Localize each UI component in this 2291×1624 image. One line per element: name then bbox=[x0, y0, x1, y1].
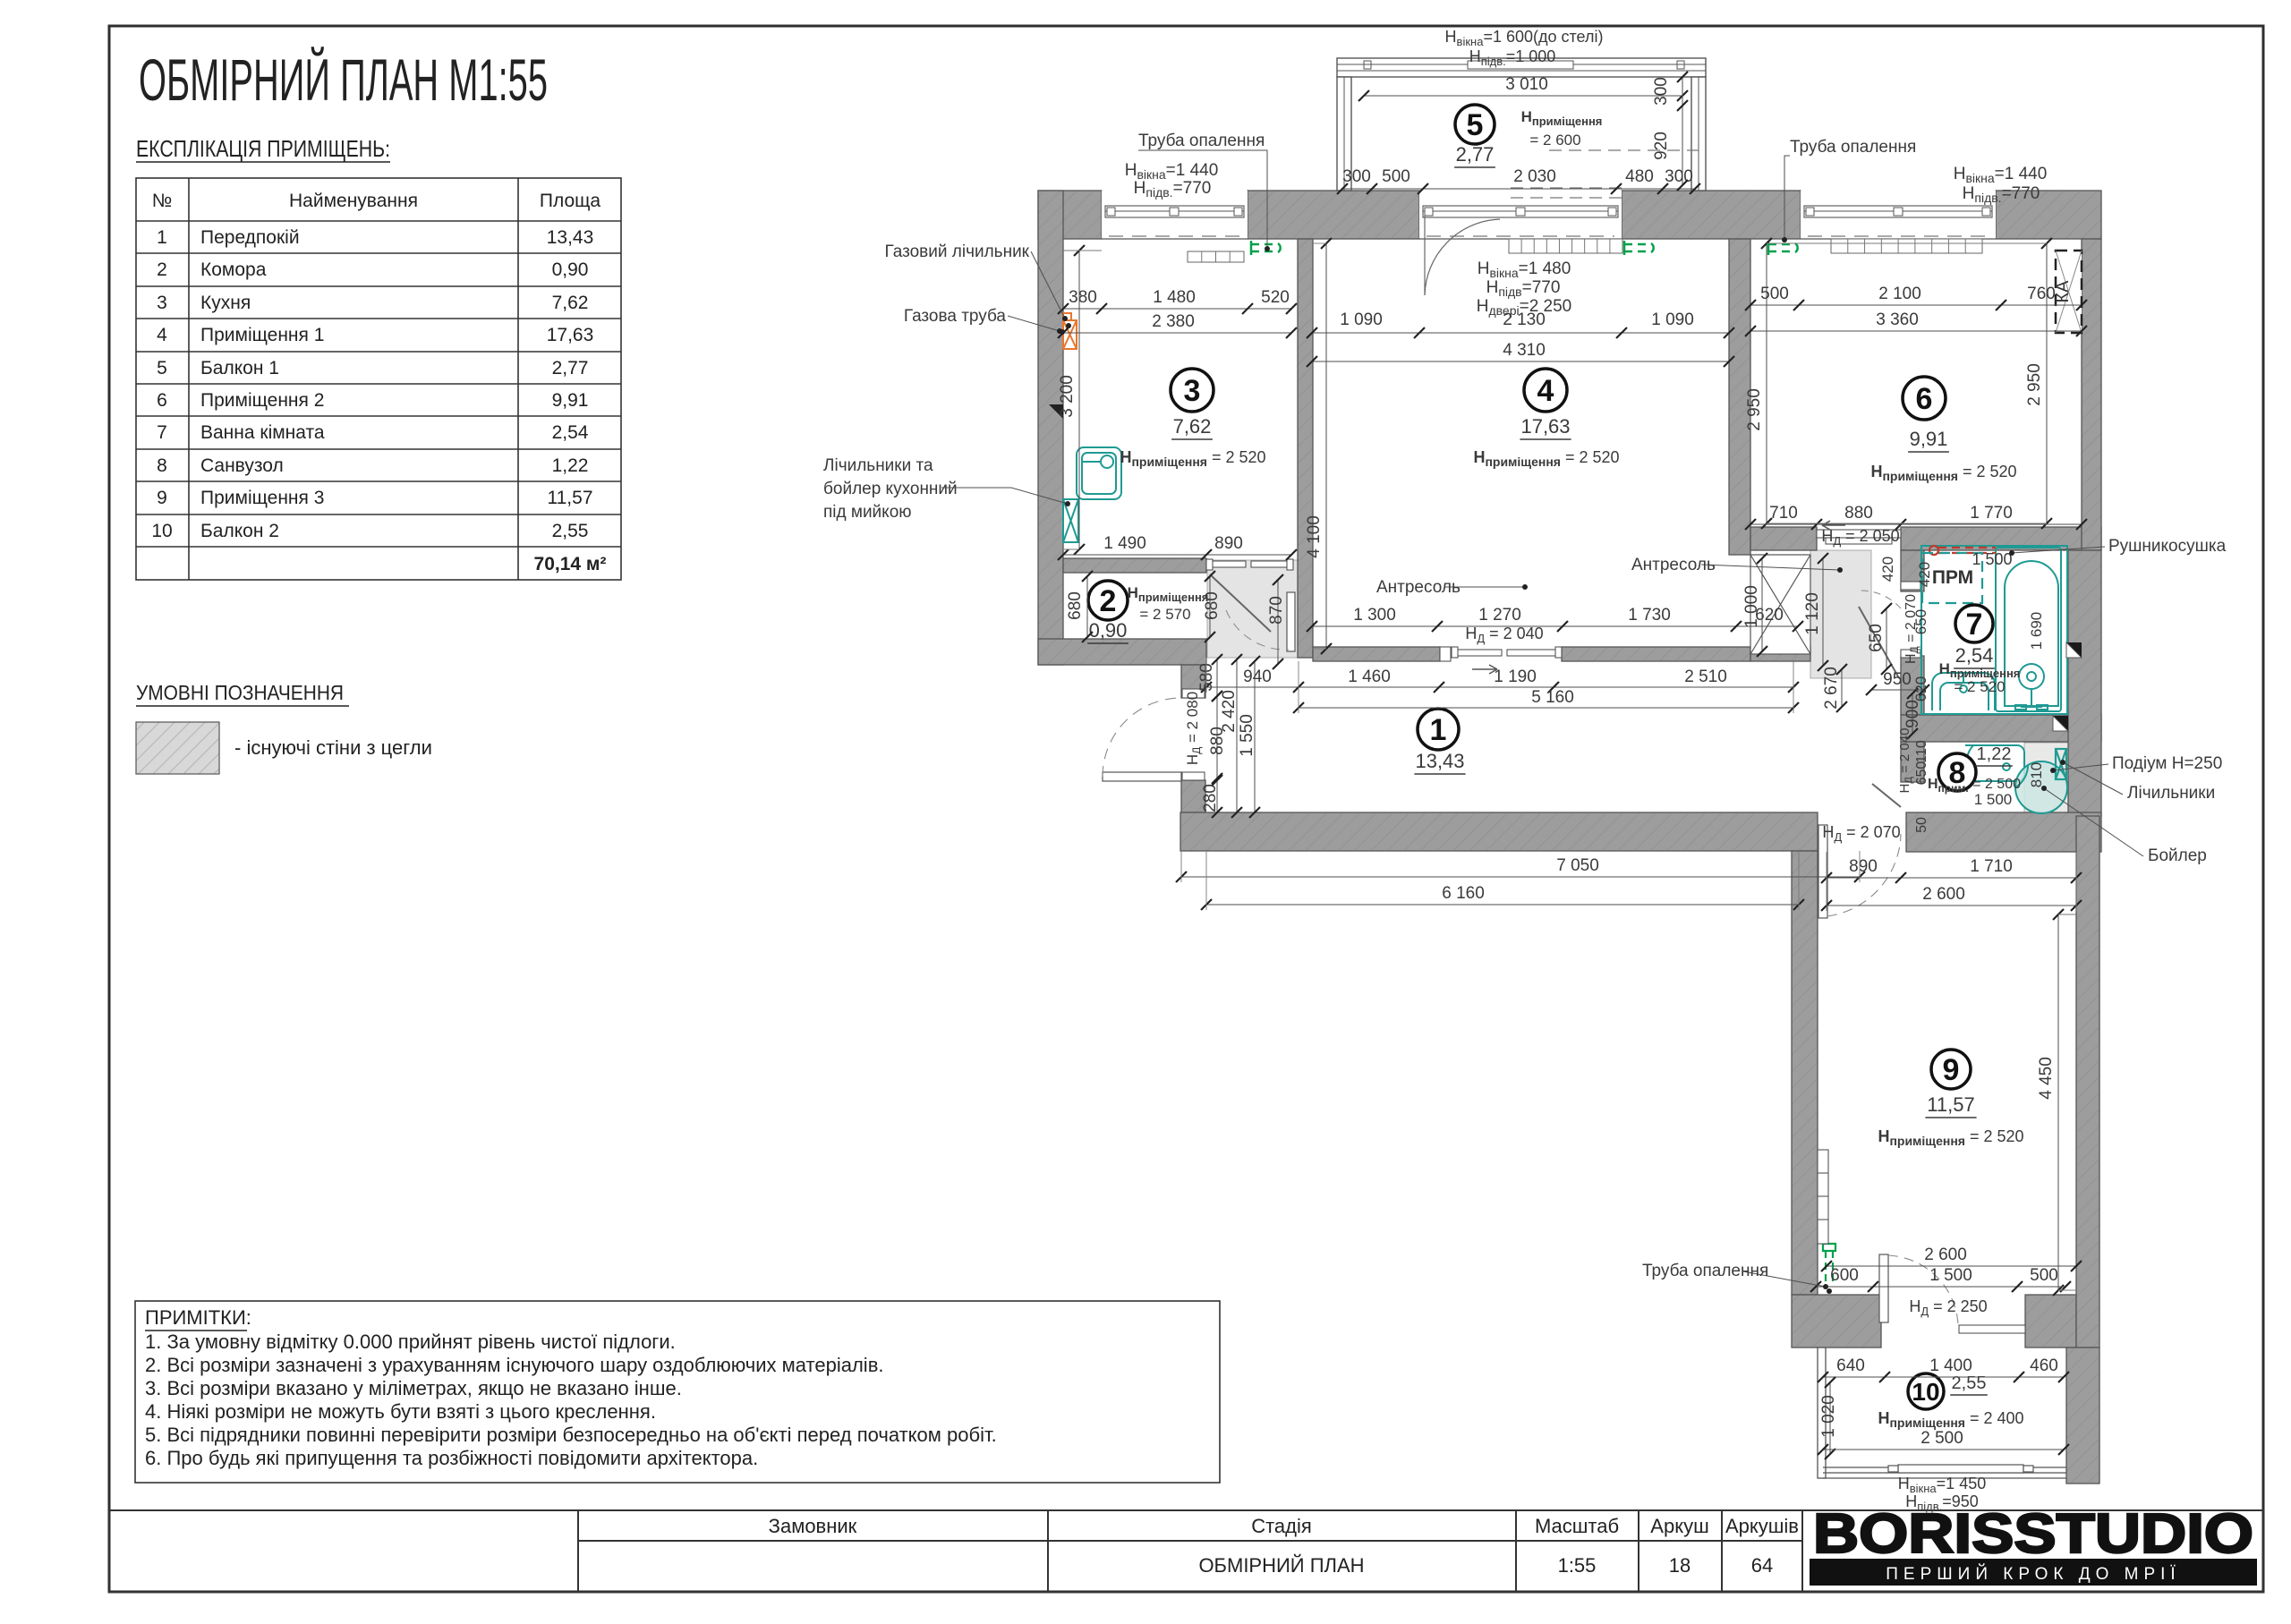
svg-text:2 600: 2 600 bbox=[1924, 1246, 1967, 1264]
svg-text:1: 1 bbox=[1430, 713, 1447, 747]
svg-text:500: 500 bbox=[2030, 1266, 2058, 1285]
svg-text:Нпідв.=950: Нпідв.=950 bbox=[1905, 1492, 1979, 1513]
svg-text:70,14 м²: 70,14 м² bbox=[534, 554, 607, 574]
svg-text:2: 2 bbox=[157, 259, 167, 280]
svg-text:1 190: 1 190 bbox=[1494, 667, 1537, 686]
svg-text:2 950: 2 950 bbox=[1745, 388, 1764, 431]
svg-text:Лічильники та: Лічильники та bbox=[823, 456, 933, 475]
svg-text:9,91: 9,91 bbox=[552, 390, 589, 411]
svg-text:1 090: 1 090 bbox=[1651, 310, 1694, 329]
svg-text:2,77: 2,77 bbox=[552, 358, 589, 378]
svg-text:650: 650 bbox=[1914, 761, 1929, 786]
svg-text:500: 500 bbox=[1382, 167, 1410, 186]
svg-text:Приміщення 2: Приміщення 2 bbox=[200, 390, 324, 411]
svg-text:50: 50 bbox=[1914, 817, 1929, 833]
svg-text:900: 900 bbox=[1903, 700, 1922, 728]
svg-text:Антресоль: Антресоль bbox=[1631, 556, 1716, 574]
svg-text:640: 640 bbox=[1836, 1356, 1865, 1375]
svg-text:Ванна кімната: Ванна кімната bbox=[200, 422, 325, 443]
svg-text:7: 7 bbox=[157, 422, 167, 443]
svg-text:110: 110 bbox=[1914, 740, 1929, 763]
svg-text:7 050: 7 050 bbox=[1556, 856, 1599, 875]
svg-text:8: 8 bbox=[157, 455, 167, 476]
svg-text:500: 500 bbox=[1760, 285, 1789, 303]
svg-text:Труба опалення: Труба опалення bbox=[1642, 1262, 1768, 1280]
svg-text:1 550: 1 550 bbox=[1238, 714, 1256, 757]
svg-text:4 450: 4 450 bbox=[2037, 1057, 2056, 1100]
svg-text:3 200: 3 200 bbox=[1058, 375, 1077, 418]
svg-text:2,55: 2,55 bbox=[552, 521, 589, 541]
svg-text:10: 10 bbox=[151, 521, 172, 541]
svg-text:1 770: 1 770 bbox=[1970, 504, 2013, 523]
svg-text:ОБМІРНИЙ ПЛАН М1:55: ОБМІРНИЙ ПЛАН М1:55 bbox=[139, 46, 548, 113]
svg-text:2 500: 2 500 bbox=[1921, 1429, 1963, 1448]
svg-text:3: 3 bbox=[1184, 374, 1201, 408]
svg-text:0,90: 0,90 bbox=[552, 259, 589, 280]
svg-text:1 400: 1 400 bbox=[1929, 1356, 1972, 1375]
svg-text:5. Всі підрядники повинні пере: 5. Всі підрядники повинні перевірити роз… bbox=[145, 1424, 997, 1446]
svg-text:УМОВНІ ПОЗНАЧЕННЯ: УМОВНІ ПОЗНАЧЕННЯ bbox=[136, 681, 344, 704]
svg-text:9: 9 bbox=[157, 488, 167, 508]
svg-text:17,63: 17,63 bbox=[1520, 415, 1570, 438]
svg-text:2 670: 2 670 bbox=[1822, 667, 1841, 710]
svg-text:Замовник: Замовник bbox=[769, 1515, 857, 1537]
svg-text:ОБМІРНИЙ ПЛАН: ОБМІРНИЙ ПЛАН bbox=[1198, 1554, 1364, 1577]
svg-text:3 010: 3 010 bbox=[1505, 75, 1548, 94]
svg-text:= 2 600: = 2 600 bbox=[1529, 132, 1580, 149]
svg-text:ПРИМІТКИ:: ПРИМІТКИ: bbox=[145, 1306, 251, 1329]
svg-text:64: 64 bbox=[1751, 1554, 1773, 1577]
svg-text:620: 620 bbox=[1912, 676, 1929, 701]
svg-text:4: 4 bbox=[1537, 374, 1554, 408]
svg-text:680: 680 bbox=[1066, 591, 1085, 620]
svg-text:Комора: Комора bbox=[200, 259, 267, 280]
svg-text:13,43: 13,43 bbox=[547, 227, 594, 248]
svg-text:1 500: 1 500 bbox=[1974, 791, 2013, 808]
svg-text:3: 3 bbox=[157, 293, 167, 313]
svg-text:4 100: 4 100 bbox=[1305, 515, 1324, 558]
svg-text:6. Про будь які припущення та: 6. Про будь які припущення та розбіжност… bbox=[145, 1447, 758, 1469]
svg-text:№: № bbox=[152, 191, 173, 211]
svg-text:11,57: 11,57 bbox=[548, 488, 593, 508]
svg-text:2 380: 2 380 bbox=[1152, 312, 1195, 331]
svg-text:2,55: 2,55 bbox=[1952, 1373, 1987, 1393]
svg-text:Балкон 2: Балкон 2 bbox=[200, 521, 279, 541]
svg-text:Найменування: Найменування bbox=[289, 191, 418, 211]
svg-text:КА: КА bbox=[2053, 280, 2073, 303]
svg-text:Нпідв.=770: Нпідв.=770 bbox=[1963, 184, 2040, 205]
svg-text:1 730: 1 730 bbox=[1628, 606, 1671, 625]
svg-text:940: 940 bbox=[1243, 667, 1272, 686]
svg-text:ПРМ: ПРМ bbox=[1932, 567, 1973, 588]
svg-text:Санвузол: Санвузол bbox=[200, 455, 284, 476]
svg-text:380: 380 bbox=[1069, 288, 1097, 307]
svg-text:Нпідв.=770: Нпідв.=770 bbox=[1134, 179, 1212, 200]
svg-text:1 500: 1 500 bbox=[1972, 550, 2012, 568]
svg-text:= 2 520: = 2 520 bbox=[1954, 678, 2005, 695]
svg-text:Балкон 1: Балкон 1 bbox=[200, 358, 279, 378]
svg-text:1 000: 1 000 bbox=[1742, 585, 1761, 628]
svg-text:Аркуш: Аркуш bbox=[1650, 1515, 1708, 1537]
svg-text:880: 880 bbox=[1844, 504, 1873, 523]
svg-text:2 030: 2 030 bbox=[1513, 167, 1556, 186]
svg-text:4: 4 bbox=[157, 325, 167, 345]
svg-text:10: 10 bbox=[1912, 1378, 1939, 1406]
svg-text:1 500: 1 500 bbox=[1929, 1266, 1972, 1285]
svg-text:Передпокій: Передпокій bbox=[200, 227, 300, 248]
svg-text:2 600: 2 600 bbox=[1922, 885, 1965, 904]
svg-text:580: 580 bbox=[1197, 663, 1216, 692]
svg-text:0,90: 0,90 bbox=[1089, 619, 1128, 642]
svg-text:Антресоль: Антресоль bbox=[1376, 578, 1461, 597]
svg-text:6 160: 6 160 bbox=[1442, 884, 1485, 903]
svg-text:1,22: 1,22 bbox=[1977, 744, 2012, 764]
svg-text:1:55: 1:55 bbox=[1558, 1554, 1597, 1577]
svg-text:1 690: 1 690 bbox=[2028, 612, 2045, 650]
svg-text:= 2 570: = 2 570 bbox=[1139, 606, 1190, 623]
svg-text:2 510: 2 510 bbox=[1684, 667, 1727, 686]
svg-text:2,77: 2,77 bbox=[1456, 143, 1495, 166]
svg-text:під мийкою: під мийкою bbox=[823, 503, 912, 522]
svg-text:9: 9 bbox=[1943, 1053, 1960, 1087]
svg-text:2. Всі розміри зазначені з ура: 2. Всі розміри зазначені з урахуванням і… bbox=[145, 1354, 884, 1376]
svg-text:- існуючі стіни з цегли: - існуючі стіни з цегли bbox=[234, 736, 432, 759]
svg-text:6: 6 bbox=[157, 390, 167, 411]
svg-text:650: 650 bbox=[1867, 624, 1886, 652]
svg-text:4 310: 4 310 bbox=[1503, 341, 1546, 360]
svg-text:2 130: 2 130 bbox=[1503, 310, 1546, 329]
svg-text:13,43: 13,43 bbox=[1415, 750, 1464, 772]
svg-text:890: 890 bbox=[1214, 534, 1243, 553]
svg-text:520: 520 bbox=[1261, 288, 1290, 307]
svg-text:4. Ніякі розміри не можуть бут: 4. Ніякі розміри не можуть бути взяті з … bbox=[145, 1400, 656, 1423]
svg-text:Аркушів: Аркушів bbox=[1725, 1515, 1799, 1537]
svg-text:Лічильники: Лічильники bbox=[2127, 784, 2215, 803]
svg-text:1,22: 1,22 bbox=[552, 455, 589, 476]
svg-text:2: 2 bbox=[1100, 584, 1117, 618]
svg-text:2,54: 2,54 bbox=[552, 422, 589, 443]
svg-text:Бойлер: Бойлер bbox=[2148, 846, 2207, 865]
svg-text:870: 870 bbox=[1267, 596, 1286, 625]
svg-text:Труба опалення: Труба опалення bbox=[1790, 138, 1916, 157]
svg-text:Площа: Площа bbox=[540, 191, 601, 211]
svg-text:1: 1 bbox=[157, 227, 167, 248]
svg-text:17,63: 17,63 bbox=[547, 325, 594, 345]
svg-text:480: 480 bbox=[1625, 167, 1654, 186]
svg-text:300: 300 bbox=[1652, 77, 1671, 106]
svg-text:5: 5 bbox=[157, 358, 167, 378]
svg-text:Газовий лічильник: Газовий лічильник bbox=[885, 242, 1030, 261]
svg-text:Кухня: Кухня bbox=[200, 293, 251, 313]
svg-text:1 710: 1 710 bbox=[1970, 857, 2013, 876]
svg-text:1 300: 1 300 bbox=[1353, 606, 1396, 625]
svg-text:950: 950 bbox=[1883, 670, 1912, 689]
svg-text:1 090: 1 090 bbox=[1340, 310, 1383, 329]
svg-text:710: 710 bbox=[1769, 504, 1798, 523]
svg-text:810: 810 bbox=[2028, 762, 2045, 787]
svg-text:Масштаб: Масштаб bbox=[1535, 1515, 1619, 1537]
svg-text:420: 420 bbox=[1879, 557, 1896, 582]
svg-text:3. Всі розміри вказано у мілім: 3. Всі розміри вказано у міліметрах, якщ… bbox=[145, 1377, 682, 1399]
svg-text:Газова труба: Газова труба bbox=[904, 307, 1007, 326]
svg-text:460: 460 bbox=[2030, 1356, 2058, 1375]
svg-text:920: 920 bbox=[1652, 132, 1671, 160]
svg-text:2 420: 2 420 bbox=[1220, 690, 1239, 733]
svg-text:7: 7 bbox=[1966, 608, 1983, 642]
svg-text:Приміщення 1: Приміщення 1 bbox=[200, 325, 324, 345]
svg-text:1 120: 1 120 bbox=[1803, 592, 1822, 635]
svg-text:Подіум Н=250: Подіум Н=250 bbox=[2112, 754, 2222, 773]
svg-text:280: 280 bbox=[1201, 784, 1220, 812]
svg-text:бойлер кухонний: бойлер кухонний bbox=[823, 480, 958, 498]
svg-text:600: 600 bbox=[1830, 1266, 1859, 1285]
svg-text:890: 890 bbox=[1849, 857, 1878, 876]
svg-text:ПЕРШИЙ КРОК ДО МРІЇ: ПЕРШИЙ КРОК ДО МРІЇ bbox=[1886, 1564, 2180, 1584]
svg-text:7,62: 7,62 bbox=[552, 293, 589, 313]
svg-text:1 460: 1 460 bbox=[1348, 667, 1391, 686]
svg-text:5: 5 bbox=[1467, 108, 1484, 142]
svg-text:5 160: 5 160 bbox=[1531, 688, 1574, 707]
svg-text:1 490: 1 490 bbox=[1103, 534, 1146, 553]
svg-text:1 270: 1 270 bbox=[1478, 606, 1521, 625]
svg-text:2 950: 2 950 bbox=[2025, 363, 2044, 406]
svg-text:3 360: 3 360 bbox=[1876, 310, 1919, 329]
svg-text:Рушникосушка: Рушникосушка bbox=[2108, 537, 2227, 556]
svg-text:1 020: 1 020 bbox=[1819, 1395, 1838, 1438]
svg-text:420: 420 bbox=[1916, 562, 1933, 587]
svg-text:18: 18 bbox=[1669, 1554, 1691, 1577]
svg-text:1 480: 1 480 bbox=[1153, 288, 1196, 307]
svg-text:680: 680 bbox=[1203, 591, 1222, 620]
svg-text:9,91: 9,91 bbox=[1910, 428, 1948, 450]
svg-text:300: 300 bbox=[1342, 167, 1371, 186]
svg-text:ЕКСПЛІКАЦІЯ ПРИМІЩЕНЬ:: ЕКСПЛІКАЦІЯ ПРИМІЩЕНЬ: bbox=[136, 135, 390, 162]
svg-text:6: 6 bbox=[1916, 382, 1933, 416]
svg-text:760: 760 bbox=[2027, 285, 2056, 303]
svg-text:Стадія: Стадія bbox=[1251, 1515, 1312, 1537]
svg-text:2 100: 2 100 bbox=[1878, 285, 1921, 303]
svg-text:Нпідв=770: Нпідв=770 bbox=[1486, 278, 1561, 299]
svg-text:7,62: 7,62 bbox=[1173, 415, 1212, 438]
svg-text:Труба опалення: Труба опалення bbox=[1138, 132, 1265, 150]
svg-text:Приміщення 3: Приміщення 3 bbox=[200, 488, 324, 508]
svg-text:2,54: 2,54 bbox=[1955, 644, 1994, 667]
svg-text:1. За умовну відмітку 0.000 пр: 1. За умовну відмітку 0.000 прийнят ріве… bbox=[145, 1331, 676, 1353]
svg-text:300: 300 bbox=[1665, 167, 1693, 186]
svg-text:11,57: 11,57 bbox=[1927, 1093, 1974, 1116]
svg-text:BORISSTUDIO: BORISSTUDIO bbox=[1813, 1503, 2253, 1565]
